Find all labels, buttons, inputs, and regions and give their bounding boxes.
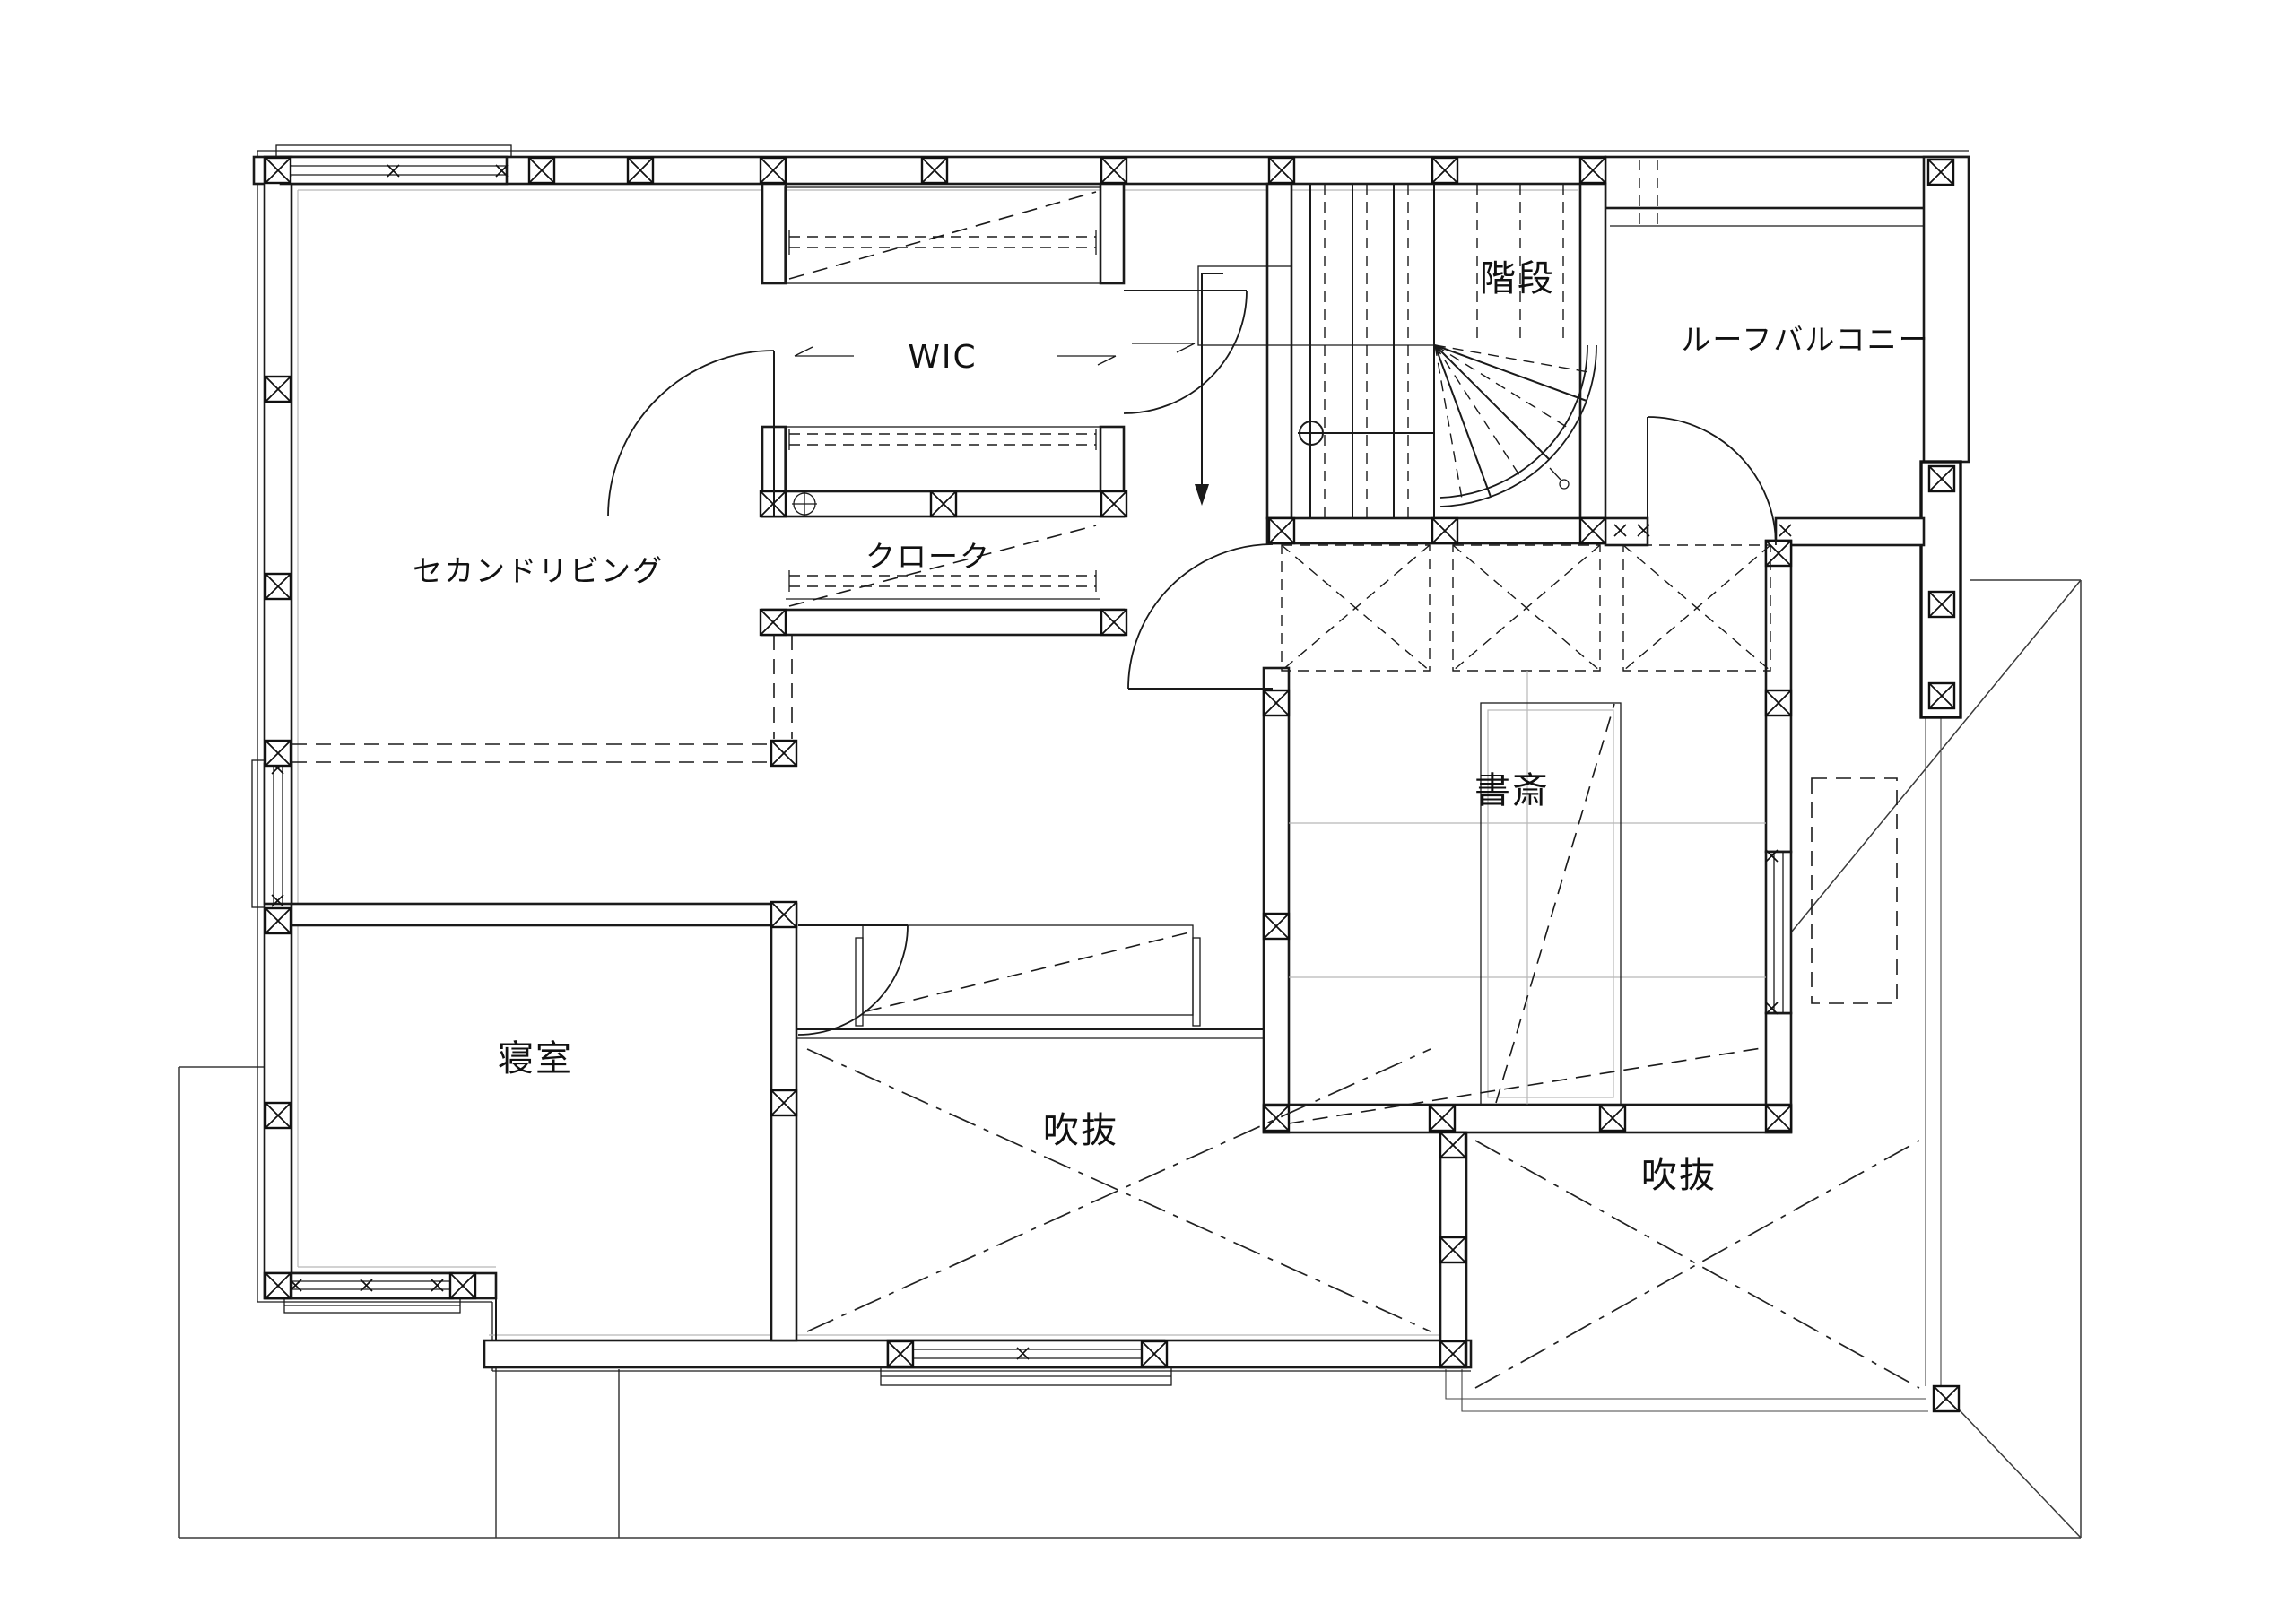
room-label-stairs: 階段 — [1480, 258, 1555, 299]
living-open-boundary — [291, 635, 792, 762]
room-label-bedroom: 寝室 — [498, 1038, 573, 1080]
wic-fittings — [785, 187, 1195, 491]
window-void-south — [881, 1340, 1171, 1385]
room-labels: セカンドリビング WIC クローク 階段 ルーフバルコニー 書斎 寝室 吹抜 吹… — [413, 258, 1930, 1196]
wall-study-south — [1264, 1105, 1791, 1132]
balcony-parapet-right — [1924, 157, 1969, 462]
balcony-wall-framed — [1921, 462, 1961, 717]
study-desk — [1481, 703, 1621, 1105]
window-study-east — [1766, 850, 1791, 1014]
room-label-study: 書斎 — [1474, 770, 1550, 811]
wall-bedroom-north — [291, 904, 796, 925]
window-bedroom-south — [284, 1273, 460, 1313]
void-handrail — [796, 1029, 1264, 1038]
room-label-void-left: 吹抜 — [1043, 1110, 1118, 1151]
stair-down-arrow — [1195, 273, 1223, 506]
void-markers — [807, 1049, 1919, 1388]
door-balcony — [1648, 417, 1776, 545]
door-study — [1128, 544, 1273, 689]
room-label-wic: WIC — [908, 339, 977, 376]
wall-study-west — [1264, 668, 1289, 1132]
door-corridor — [1124, 291, 1247, 413]
door-living-hall — [608, 351, 774, 516]
roof-outline — [179, 580, 2081, 1538]
roof-hip-lower — [1959, 1409, 2081, 1538]
windows — [252, 145, 1791, 1385]
closet-boxes — [1282, 545, 1770, 671]
wall-bedroom-east — [771, 925, 796, 1340]
room-label-cloak: クローク — [865, 539, 991, 574]
door-bedroom — [798, 925, 908, 1035]
study-fittings — [1282, 545, 1770, 1123]
room-label-void-right: 吹抜 — [1641, 1155, 1717, 1196]
wall-stair-balcony — [1580, 184, 1605, 518]
wall-balcony-south-b — [1776, 518, 1924, 545]
room-label-roof-balcony: ルーフバルコニー — [1681, 322, 1929, 357]
room-label-second-living: セカンドリビング — [413, 553, 664, 588]
stairs — [1195, 184, 1596, 518]
balcony-parapet-top — [1605, 157, 1969, 208]
wall-stair-left — [1267, 184, 1291, 518]
floor-plan-svg: セカンドリビング WIC クローク 階段 ルーフバルコニー 書斎 寝室 吹抜 吹… — [0, 0, 2296, 1622]
wall-cloak-south — [762, 610, 1124, 635]
